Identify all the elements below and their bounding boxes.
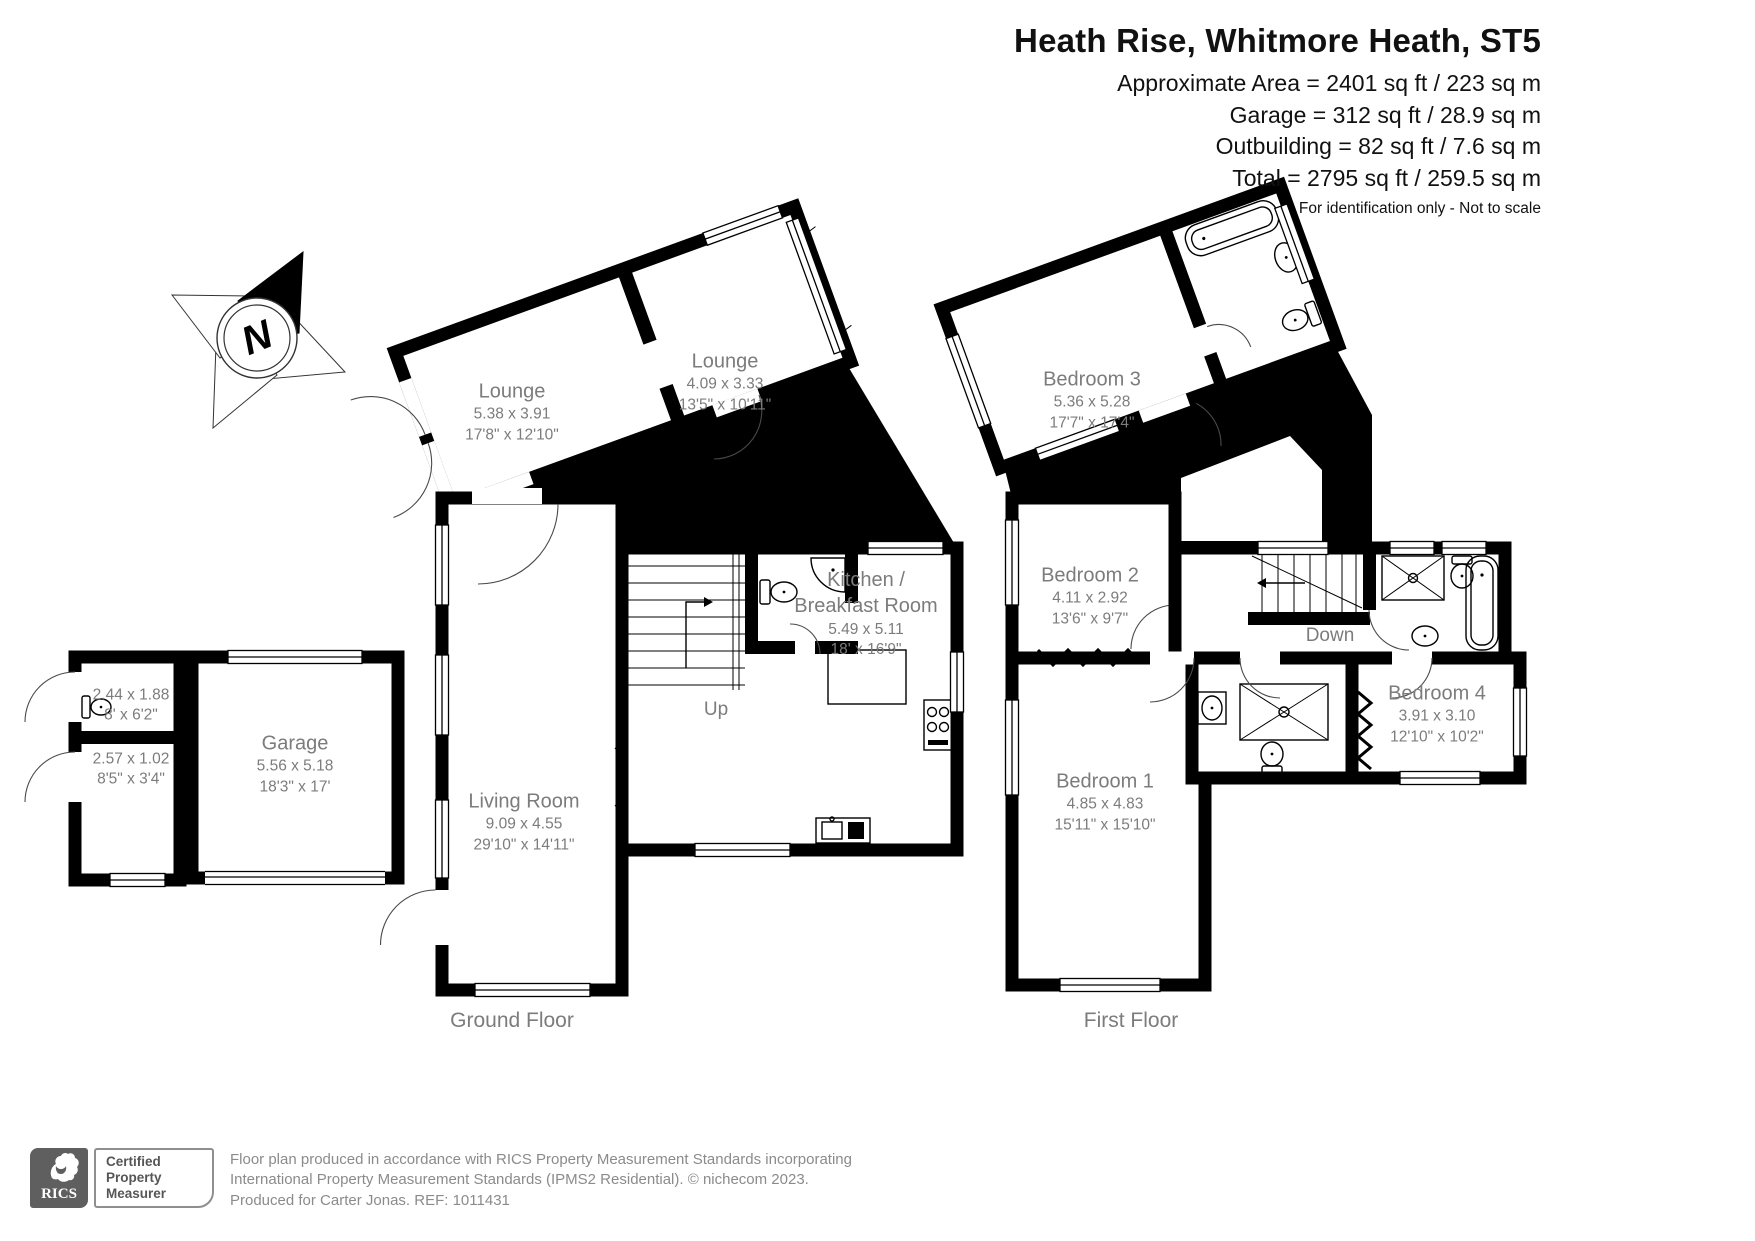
- area-summary: Approximate Area = 2401 sq ft / 223 sq m…: [1014, 70, 1541, 192]
- compass-icon: N: [172, 252, 345, 428]
- stairs-up-label: Up: [704, 699, 728, 721]
- footer-block: RICS Certified Property Measurer Floor p…: [30, 1148, 852, 1211]
- stairs-down-label: Down: [1306, 625, 1355, 647]
- area-line-garage: Garage = 312 sq ft / 28.9 sq m: [1014, 102, 1541, 130]
- header-block: Heath Rise, Whitmore Heath, ST5 Approxim…: [1014, 22, 1541, 218]
- room-label-lounge-rear: Lounge 5.38 x 3.91 17'8" x 12'10": [465, 378, 559, 445]
- area-line-total: Total = 2795 sq ft / 259.5 sq m: [1014, 165, 1541, 193]
- room-label-bedroom-3: Bedroom 3 5.36 x 5.28 17'7" x 17'4": [1043, 366, 1141, 433]
- room-label-kitchen: Kitchen / Breakfast Room 5.49 x 5.11 18'…: [794, 567, 937, 661]
- rics-logo: RICS: [30, 1148, 88, 1208]
- first-floor-plan: [936, 185, 1527, 991]
- room-label-outbuilding-1: 2.44 x 1.88 8' x 6'2": [93, 686, 170, 727]
- area-line-approximate: Approximate Area = 2401 sq ft / 223 sq m: [1014, 70, 1541, 98]
- room-label-living-room: Living Room 9.09 x 4.55 29'10" x 14'11": [468, 788, 579, 855]
- shower-room: [1192, 658, 1352, 778]
- footer-line-3: Produced for Carter Jonas. REF: 1011431: [230, 1191, 852, 1211]
- footer-line-2: International Property Measurement Stand…: [230, 1170, 852, 1190]
- room-label-garage: Garage 5.56 x 5.18 18'3" x 17': [257, 730, 334, 797]
- certified-measurer-badge: Certified Property Measurer: [94, 1148, 214, 1208]
- area-line-outbuilding: Outbuilding = 82 sq ft / 7.6 sq m: [1014, 133, 1541, 161]
- room-label-bedroom-1: Bedroom 1 4.85 x 4.83 15'11" x 15'10": [1054, 768, 1155, 835]
- rics-wordmark: RICS: [41, 1186, 77, 1202]
- footer-text: Floor plan produced in accordance with R…: [230, 1148, 852, 1211]
- living-room: [381, 488, 649, 997]
- disclaimer-text: For identification only - Not to scale: [1014, 200, 1541, 218]
- room-label-outbuilding-2: 2.57 x 1.02 8'5" x 3'4": [93, 750, 170, 791]
- footer-line-1: Floor plan produced in accordance with R…: [230, 1150, 852, 1170]
- room-label-lounge-front: Lounge 4.09 x 3.33 13'5" x 10'11": [679, 348, 771, 415]
- room-label-bedroom-4: Bedroom 4 3.91 x 3.10 12'10" x 10'2": [1388, 680, 1486, 747]
- floor-plan-page: N: [0, 0, 1755, 1241]
- page-title: Heath Rise, Whitmore Heath, ST5: [1014, 22, 1541, 60]
- rics-lion-icon: RICS: [30, 1148, 88, 1208]
- ground-floor-label: Ground Floor: [450, 1009, 574, 1033]
- room-label-bedroom-2: Bedroom 2 4.11 x 2.92 13'6" x 9'7": [1041, 562, 1139, 629]
- first-floor-label: First Floor: [1084, 1009, 1179, 1033]
